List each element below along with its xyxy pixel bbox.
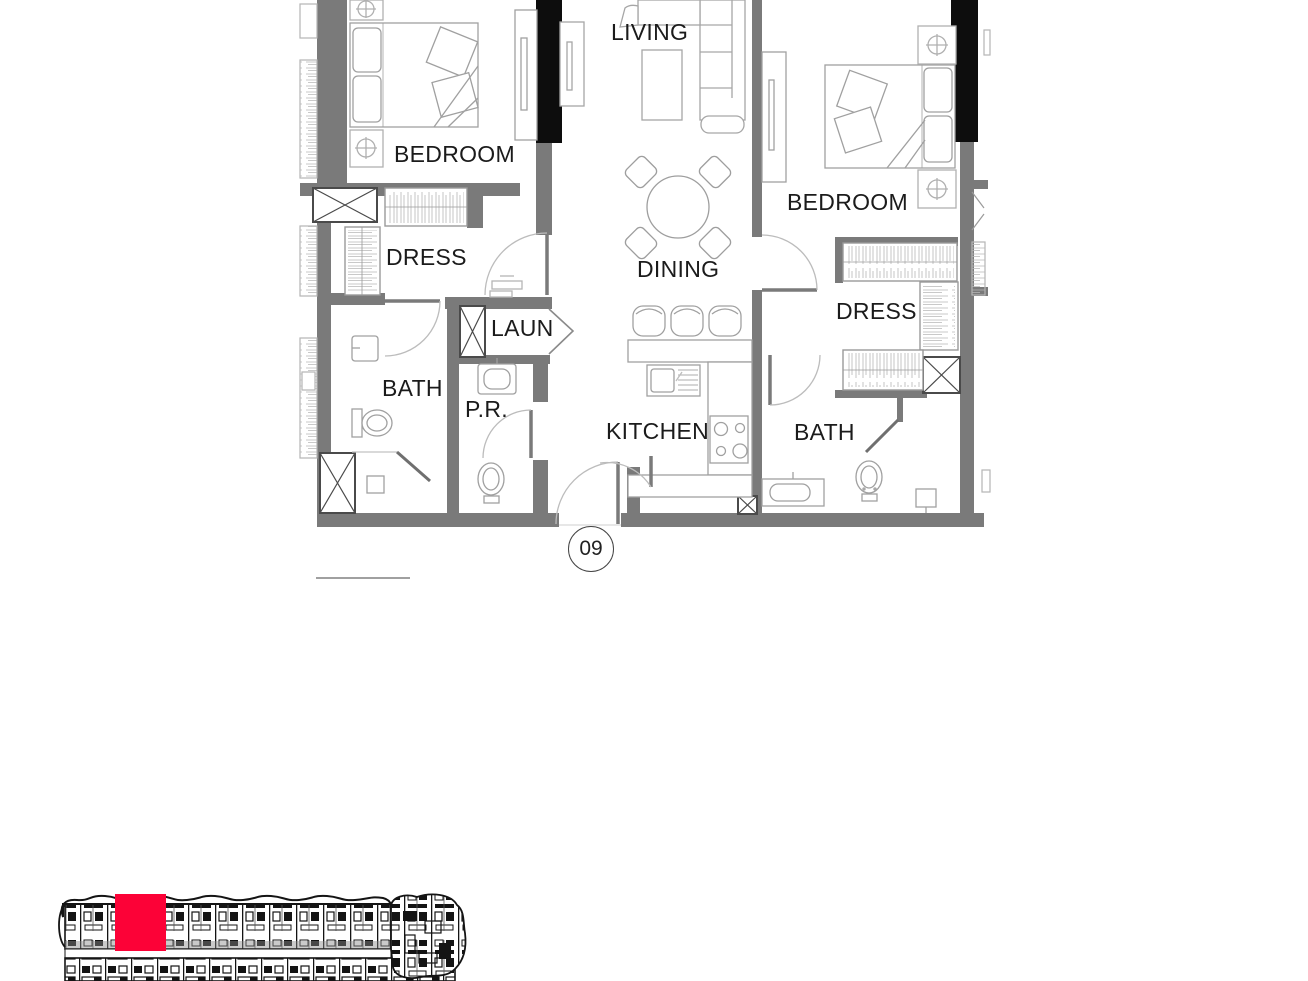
wardrobe-right-dress-top bbox=[843, 243, 957, 281]
shaft-icon bbox=[923, 357, 960, 393]
ceiling-light-icon bbox=[918, 26, 956, 64]
room-label-dining: DINING bbox=[637, 258, 719, 281]
tv-unit bbox=[762, 52, 786, 182]
kitchen-furniture bbox=[628, 306, 752, 497]
ceiling-light-icon bbox=[350, 0, 383, 20]
door-left-bath bbox=[385, 301, 440, 356]
washer-valves bbox=[490, 276, 522, 297]
coffee-table bbox=[642, 50, 682, 120]
shaft-icon bbox=[460, 306, 485, 357]
bar-stool bbox=[671, 306, 703, 336]
room-label-powder-room: P.R. bbox=[465, 398, 508, 421]
ceiling-light-icon bbox=[350, 130, 383, 167]
room-label-living: LIVING bbox=[611, 21, 688, 44]
door-entry bbox=[556, 462, 621, 525]
door-right-bedroom bbox=[762, 235, 817, 290]
toilet bbox=[352, 409, 392, 437]
bar-stool bbox=[633, 306, 665, 336]
wardrobe-right-dress-bottom bbox=[843, 350, 923, 390]
stove bbox=[710, 416, 748, 463]
unit-number-badge: 09 bbox=[568, 526, 614, 572]
ceiling-light-icon bbox=[918, 170, 956, 208]
floor-plan-drawing bbox=[0, 0, 1308, 981]
building-overview-map bbox=[53, 891, 473, 981]
tv-unit bbox=[515, 10, 537, 140]
tv-unit bbox=[560, 22, 584, 106]
room-label-kitchen: KITCHEN bbox=[606, 420, 709, 443]
room-label-dress-right: DRESS bbox=[836, 300, 917, 323]
door-right-bath bbox=[770, 355, 820, 405]
kitchen-sink bbox=[647, 365, 700, 396]
room-label-bedroom-left: BEDROOM bbox=[394, 143, 515, 166]
right-bedroom-furniture bbox=[762, 26, 956, 208]
shower-drain bbox=[916, 489, 936, 513]
floorplan-viewer: LIVING BEDROOM DRESS LAUN BATH P.R. DINI… bbox=[0, 0, 1308, 981]
bar-stool bbox=[709, 306, 741, 336]
shaft-icon bbox=[738, 496, 757, 514]
bathroom-sink bbox=[762, 472, 824, 506]
dining-table bbox=[647, 176, 709, 238]
dining-furniture bbox=[623, 154, 732, 260]
shower-drain bbox=[367, 476, 384, 493]
bathroom-sink bbox=[352, 336, 378, 361]
shaft-icon bbox=[313, 188, 377, 222]
room-label-dress-left: DRESS bbox=[386, 246, 467, 269]
shaft-icon bbox=[320, 453, 355, 513]
wardrobe-left-dress-top bbox=[385, 188, 467, 226]
room-label-laundry: LAUN bbox=[491, 317, 554, 340]
wardrobe-left-dress-side bbox=[345, 227, 380, 295]
wardrobe-right-dress-side bbox=[920, 282, 958, 350]
toilet bbox=[856, 461, 882, 501]
selected-unit-highlight bbox=[115, 894, 166, 951]
room-label-bath-right: BATH bbox=[794, 421, 855, 444]
powder-room-fixtures bbox=[478, 358, 516, 503]
room-label-bedroom-right: BEDROOM bbox=[787, 191, 908, 214]
room-label-bath-left: BATH bbox=[382, 377, 443, 400]
unit-number: 09 bbox=[579, 537, 602, 561]
